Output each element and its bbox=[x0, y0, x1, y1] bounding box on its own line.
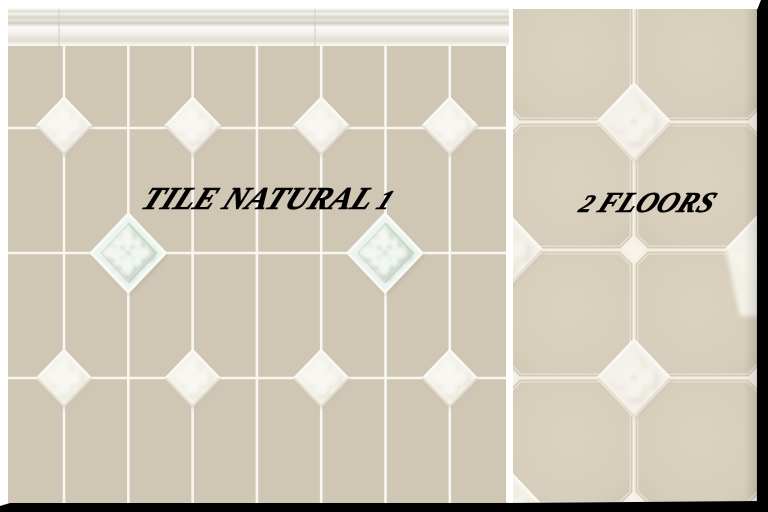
svg-text:2 FLOORS: 2 FLOORS bbox=[574, 186, 722, 218]
svg-text:TILE NATURAL 1: TILE NATURAL 1 bbox=[136, 181, 400, 216]
